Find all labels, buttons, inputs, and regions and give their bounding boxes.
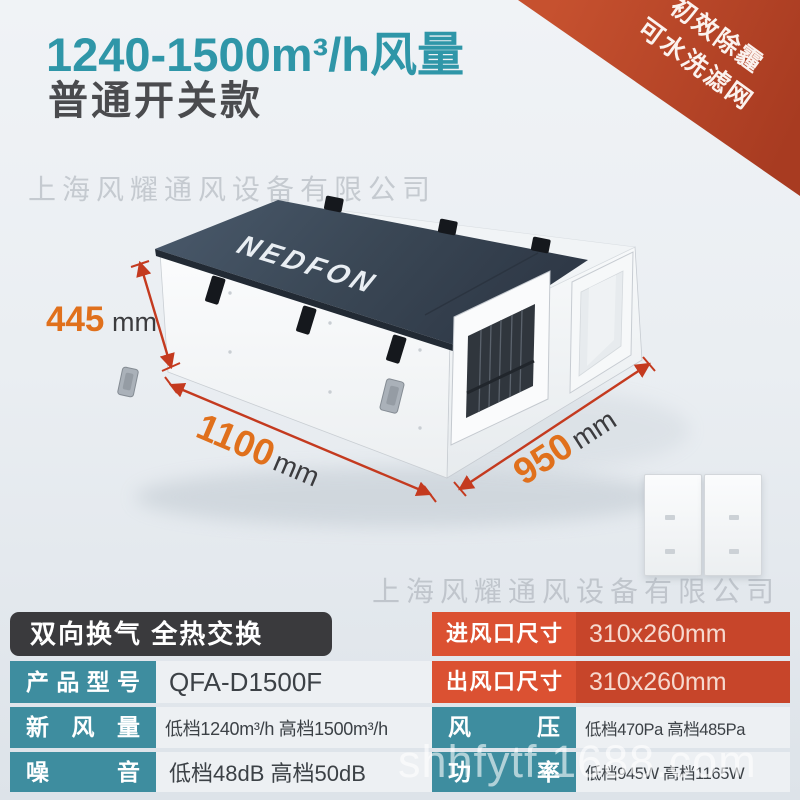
spec-row-airflow: 新风量 低档1240m³/h 高档1500m³/h — [10, 707, 436, 748]
spec-label: 产品型号 — [10, 661, 156, 703]
spec-label: 进风口尺寸 — [432, 612, 576, 656]
handle-brackets — [117, 367, 404, 414]
unit-shadow — [135, 390, 690, 527]
spec-label: 出风口尺寸 — [432, 661, 576, 703]
spec-value: 310x260mm — [576, 661, 790, 703]
length-unit: mm — [269, 446, 324, 493]
dimension-label-length: 1100 mm — [191, 406, 327, 495]
spec-value: QFA-D1500F — [156, 661, 436, 703]
spec-row-noise: 噪音 低档48dB 高档50dB — [10, 752, 436, 792]
dimension-arrow-length — [171, 385, 430, 494]
company-watermark-top: 上海风耀通风设备有限公司 — [28, 168, 436, 208]
spec-row-outlet: 出风口尺寸 310x260mm — [432, 661, 790, 703]
dimension-arrows — [131, 261, 655, 502]
spec-table-left-header: 双向换气 全热交换 — [10, 612, 332, 656]
unit-top-rim — [160, 203, 635, 336]
headline-model-type: 普通开关款 — [48, 68, 263, 126]
unit-lid — [155, 200, 588, 353]
height-unit: mm — [112, 307, 157, 337]
panel-screws — [228, 291, 421, 429]
dimension-label-depth: 950 mm — [506, 397, 623, 493]
spec-row-inlet: 进风口尺寸 310x260mm — [432, 612, 790, 656]
dimension-label-height: 445 mm — [46, 300, 157, 339]
site-watermark: shhfytf.1688.com — [398, 736, 757, 788]
depth-unit: mm — [566, 404, 622, 455]
unit-right-panel — [447, 247, 642, 478]
spec-value: 低档1240m³/h 高档1500m³/h — [156, 707, 436, 748]
spec-value: 310x260mm — [576, 612, 790, 656]
switch-rocker — [729, 515, 739, 520]
brand-logo: NEDFON — [232, 227, 384, 301]
product-banner: 上海风耀通风设备有限公司 1240-1500m³/h风量 普通开关款 初效除霾 … — [0, 0, 800, 800]
dimension-arrow-height — [140, 263, 171, 367]
spec-value: 低档48dB 高档50dB — [156, 752, 436, 792]
spec-row-model: 产品型号 QFA-D1500F — [10, 661, 436, 703]
wall-switch-right — [704, 474, 762, 576]
company-watermark-middle: 上海风耀通风设备有限公司 — [372, 570, 780, 610]
spec-label: 新风量 — [10, 707, 156, 748]
switch-rocker — [665, 515, 675, 520]
switch-rocker — [665, 549, 675, 554]
brand-logo-text: NEDFON — [232, 229, 384, 299]
depth-value: 950 — [506, 425, 580, 493]
dimension-arrow-depth — [460, 364, 649, 489]
wall-switch-left — [644, 474, 702, 576]
length-value: 1100 — [191, 406, 281, 475]
lid-clips — [205, 195, 551, 364]
height-value: 445 — [46, 300, 104, 339]
duct-opening-main — [451, 271, 550, 445]
wall-switch-panels — [644, 474, 762, 576]
duct-opening-secondary — [570, 252, 633, 393]
spec-label: 噪音 — [10, 752, 156, 792]
switch-rocker — [729, 549, 739, 554]
unit-front-panel — [160, 252, 450, 478]
